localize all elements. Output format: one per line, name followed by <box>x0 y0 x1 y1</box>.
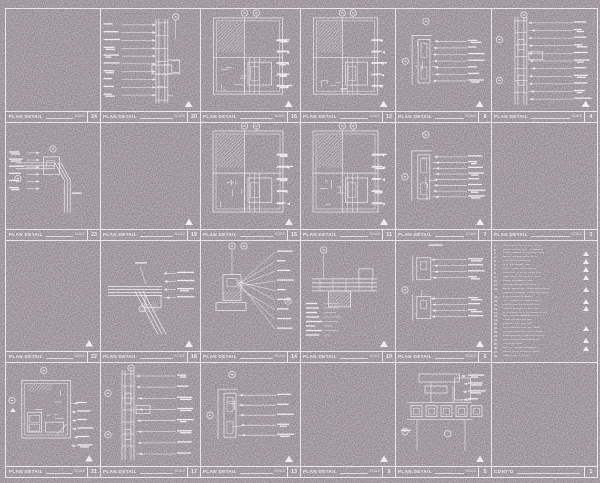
panel-title: PLAN DETAIL <box>203 115 237 120</box>
title-rule <box>435 118 464 119</box>
panel-scale-label: SCALE <box>275 470 285 473</box>
detail-drawing <box>200 362 300 466</box>
detail-drawing <box>100 362 200 466</box>
keynote-text: CONT. SEALANT AND BKR. ROD <box>503 252 583 255</box>
panel-scale-label: SCALE <box>370 115 380 118</box>
title-rule <box>46 358 73 359</box>
detail-drawing <box>300 9 395 111</box>
detail-panel-3: PLAN DETAILSCALE3 <box>491 122 598 241</box>
detail-panel-22: PLAN DETAILSCALE22 <box>5 240 101 363</box>
panel-title: PLAN DETAIL <box>494 233 528 238</box>
keynote-text: ACOUS. SEALANT BOTH SIDES <box>503 331 595 334</box>
title-rule <box>240 236 273 237</box>
detail-panel-15: PLAN DETAILSCALE15 <box>200 122 301 241</box>
panel-scale-label: SCALE <box>370 470 380 473</box>
detail-panel-5: PLAN DETAILSCALE5 <box>395 362 492 478</box>
detail-panel-16: PLAN DETAILSCALE16 <box>200 8 301 123</box>
title-rule <box>140 236 173 237</box>
keynote-code: 1. <box>494 245 503 248</box>
keynote-text: PREFIN. MTL. COPING <box>503 323 595 326</box>
panel-title: PLAN DETAIL <box>398 233 432 238</box>
keynote-text: 5/8 IN. GYP. BD. O/ MTL. STUD <box>503 245 595 248</box>
title-rule <box>517 473 580 474</box>
panel-number-badge: 12 <box>382 112 395 122</box>
detail-drawing <box>491 9 597 111</box>
title-rule <box>140 118 173 119</box>
panel-number-badge: 23 <box>87 230 100 240</box>
panel-title-bar: PLAN DETAILSCALE16 <box>200 111 300 122</box>
detail-drawing <box>200 9 300 111</box>
keynote-text: REPAIR AS REQD. TO MATCH EXIST. <box>503 292 595 295</box>
panel-title-bar: CONT'D1 <box>491 466 597 477</box>
detail-drawing <box>395 240 491 351</box>
panel-title: PLAN DETAIL <box>203 470 237 475</box>
title-rule <box>531 236 570 237</box>
keynote-text: STL. TUBE COL. SEE STRUCT. <box>503 300 583 303</box>
title-rule <box>240 118 273 119</box>
panel-scale-label: SCALE <box>75 115 85 118</box>
keynote-text: STL. ANGLE CONT. EA. SIDE <box>503 327 583 330</box>
detail-panel-19: PLAN DETAILSCALE19 <box>100 122 201 241</box>
panel-number-badge: 9 <box>382 467 395 477</box>
panel-scale-label: SCALE <box>466 233 476 236</box>
keynote-text: RIGID INSUL. R-10 MIN. <box>503 319 595 322</box>
detail-drawing <box>200 122 300 229</box>
panel-number-badge: 1 <box>584 467 597 477</box>
panel-title-bar: PLAN DETAILSCALE19 <box>100 229 200 240</box>
title-rule <box>140 473 173 474</box>
panel-scale-label: SCALE <box>275 115 285 118</box>
panel-number-badge: 17 <box>187 467 200 477</box>
panel-number-badge: 10 <box>382 352 395 362</box>
panel-number-badge: 18 <box>187 352 200 362</box>
detail-panel-1: CONT'D1 <box>491 362 598 478</box>
detail-drawing <box>300 122 395 229</box>
panel-title: PLAN DETAIL <box>494 115 528 120</box>
detail-drawing <box>395 122 491 229</box>
keynote-text: ALIGN FACE W/ EXIST. WALL <box>503 351 595 354</box>
title-rule <box>46 236 73 237</box>
panel-scale-label: SCALE <box>572 115 582 118</box>
detail-panel-9: PLAN DETAILSCALE9 <box>300 362 396 478</box>
keynote-text: ALUM. STOREFRONT SYS. <box>503 256 595 259</box>
detail-drawing <box>6 240 100 351</box>
panel-number-badge: 3 <box>584 230 597 240</box>
panel-title: PLAN DETAIL <box>303 233 337 238</box>
panel-title: PLAN DETAIL <box>9 355 43 360</box>
panel-title-bar: PLAN DETAILSCALE14 <box>200 351 300 362</box>
panel-title: PLAN DETAIL <box>103 233 137 238</box>
detail-drawing <box>395 362 491 466</box>
detail-drawing <box>200 240 300 351</box>
panel-title-bar: PLAN DETAILSCALE24 <box>6 111 100 122</box>
panel-title-bar: PLAN DETAILSCALE18 <box>100 351 200 362</box>
panel-title: PLAN DETAIL <box>398 355 432 360</box>
panel-title: PLAN DETAIL <box>203 233 237 238</box>
panel-scale-label: SCALE <box>275 355 285 358</box>
panel-number-badge: 5 <box>478 467 491 477</box>
keynote-row: 28.SEE STRUCT. DWGS. <box>494 354 595 358</box>
detail-panel-13: PLAN DETAILSCALE13 <box>200 362 301 478</box>
panel-scale-label: SCALE <box>75 355 85 358</box>
panel-title: PLAN DETAIL <box>303 355 337 360</box>
title-rule <box>140 358 173 359</box>
panel-number-badge: 8 <box>478 112 491 122</box>
keynote-text: CEM. PLASTER O/ MTL. LATH <box>503 276 583 279</box>
detail-panel-21: PLAN DETAILSCALE21 <box>5 362 101 478</box>
keynote-text: 1 IN. INSUL. GLAZING <box>503 260 583 263</box>
panel-scale-label: SCALE <box>275 233 285 236</box>
panel-scale-label: SCALE <box>466 115 476 118</box>
panel-title-bar: PLAN DETAILSCALE10 <box>300 351 395 362</box>
keynote-text: 2-HR RATED ASSEMBLY <box>503 296 595 299</box>
title-rule <box>340 236 368 237</box>
keynote-text: SEE STRUCT. DWGS. <box>503 355 595 358</box>
panel-title-bar: PLAN DETAILSCALE11 <box>300 229 395 240</box>
panel-number-badge: 20 <box>187 112 200 122</box>
title-rule <box>435 358 464 359</box>
keynote-code: 12. <box>494 288 503 291</box>
keynote-code: 28. <box>494 355 503 358</box>
detail-panel-10: PLAN DETAILSCALE10 <box>300 240 396 363</box>
detail-drawing <box>300 240 395 351</box>
panel-title-bar: PLAN DETAILSCALE4 <box>491 111 597 122</box>
keynote-text: ANCHOR BOLT AT 24 IN. O.C. <box>503 304 595 307</box>
panel-number-badge: 24 <box>87 112 100 122</box>
detail-drawing <box>491 362 597 466</box>
panel-title-bar: PLAN DETAILSCALE12 <box>300 111 395 122</box>
keynote-text: MTL. PANEL SYS. W/ CONC. CLIPS <box>503 312 595 315</box>
panel-title-bar: PLAN DETAILSCALE13 <box>200 466 300 477</box>
panel-title-bar: PLAN DETAILSCALE15 <box>200 229 300 240</box>
panel-number-badge: 11 <box>382 230 395 240</box>
title-rule <box>240 358 273 359</box>
keynote-text: MTL. CLOSURE TRIM <box>503 264 595 267</box>
panel-title: PLAN DETAIL <box>303 115 337 120</box>
panel-title-bar: PLAN DETAILSCALE23 <box>6 229 100 240</box>
panel-title-bar: PLAN DETAILSCALE21 <box>6 466 100 477</box>
detail-panel-24: PLAN DETAILSCALE24 <box>5 8 101 123</box>
detail-panel-2: 1.5/8 IN. GYP. BD. O/ MTL. STUD2.EXIST. … <box>491 240 598 363</box>
panel-title-bar: PLAN DETAILSCALE20 <box>100 111 200 122</box>
panel-scale-label: SCALE <box>175 115 185 118</box>
panel-title: PLAN DETAIL <box>9 115 43 120</box>
keynote-text: FIRE SAFING AT DECK FLUTES <box>503 335 595 338</box>
panel-title-bar: PLAN DETAILSCALE6 <box>395 351 491 362</box>
panel-scale-label: SCALE <box>75 470 85 473</box>
panel-scale-label: SCALE <box>466 355 476 358</box>
keynote-text: WEEP SCREED AT SILL <box>503 280 595 283</box>
keynote-text: EXP. JT. COVER ASSEMBLY <box>503 347 583 350</box>
keynote-text: SHIM AS REQD. AT EA. CLIP <box>503 308 583 311</box>
panel-title: PLAN DETAIL <box>203 355 237 360</box>
panel-scale-label: SCALE <box>572 233 582 236</box>
keynote-text: 6 IN. MTL. STUD AT 16 IN. O.C. <box>503 272 595 275</box>
detail-panel-6: PLAN DETAILSCALE6 <box>395 240 492 363</box>
panel-number-badge: 22 <box>87 352 100 362</box>
panel-title-bar: PLAN DETAILSCALE22 <box>6 351 100 362</box>
keynote-code: 15. <box>494 304 503 307</box>
panel-title-bar: PLAN DETAILSCALE3 <box>491 229 597 240</box>
panel-number-badge: 15 <box>287 230 300 240</box>
title-rule <box>435 236 464 237</box>
panel-scale-label: SCALE <box>370 233 380 236</box>
title-rule <box>531 118 570 119</box>
panel-scale-label: SCALE <box>75 233 85 236</box>
title-rule <box>340 473 368 474</box>
title-rule <box>46 118 73 119</box>
panel-title: PLAN DETAIL <box>9 233 43 238</box>
detail-drawing <box>100 9 200 111</box>
panel-title: PLAN DETAIL <box>103 355 137 360</box>
detail-panel-23: PLAN DETAILSCALE23 <box>5 122 101 241</box>
panel-number-badge: 6 <box>478 352 491 362</box>
detail-panel-4: PLAN DETAILSCALE4 <box>491 8 598 123</box>
detail-drawing <box>100 240 200 351</box>
keynote-text: EXIST. MASONRY WALL, PATCH AND <box>503 288 583 291</box>
panel-title: PLAN DETAIL <box>303 470 337 475</box>
title-rule <box>240 473 273 474</box>
title-rule <box>340 358 368 359</box>
panel-scale-label: SCALE <box>175 470 185 473</box>
detail-drawing <box>6 362 100 466</box>
panel-number-badge: 16 <box>287 112 300 122</box>
panel-title: CONT'D <box>494 470 514 475</box>
panel-title-bar: PLAN DETAILSCALE7 <box>395 229 491 240</box>
detail-drawing <box>6 122 100 229</box>
panel-number-badge: 7 <box>478 230 491 240</box>
panel-number-badge: 19 <box>187 230 200 240</box>
panel-scale-label: SCALE <box>175 355 185 358</box>
detail-drawing <box>491 122 597 229</box>
title-rule <box>435 473 464 474</box>
panel-title-bar: PLAN DETAILSCALE8 <box>395 111 491 122</box>
detail-panel-17: PLAN DETAILSCALE17 <box>100 362 201 478</box>
panel-scale-label: SCALE <box>175 233 185 236</box>
detail-sheet: PLAN DETAILSCALE24PLAN DETAILSCALE20PLAN… <box>0 0 600 483</box>
panel-title-bar: PLAN DETAILSCALE5 <box>395 466 491 477</box>
detail-panel-18: PLAN DETAILSCALE18 <box>100 240 201 363</box>
detail-panel-11: PLAN DETAILSCALE11 <box>300 122 396 241</box>
keynote-text: FLASHING AND CONTROL JT. <box>503 284 595 287</box>
detail-drawing <box>300 362 395 466</box>
keynote-text: BATT INSUL. FULL DEPTH <box>503 268 583 271</box>
detail-drawing <box>6 9 100 111</box>
panel-number-badge: 21 <box>87 467 100 477</box>
detail-panel-8: PLAN DETAILSCALE8 <box>395 8 492 123</box>
keynote-code: 16. <box>494 308 503 311</box>
panel-title: PLAN DETAIL <box>9 470 43 475</box>
panel-number-badge: 13 <box>287 467 300 477</box>
keynote-text: EXIST. CONC. COL. TO REMAIN <box>503 249 595 252</box>
keynote-text: AIR / VAPOR BARRIER CONT. <box>503 315 595 318</box>
panel-scale-label: SCALE <box>466 470 476 473</box>
panel-title: PLAN DETAIL <box>398 470 432 475</box>
title-rule <box>46 473 73 474</box>
keynotes-list: 1.5/8 IN. GYP. BD. O/ MTL. STUD2.EXIST. … <box>494 244 595 360</box>
panel-title: PLAN DETAIL <box>398 115 432 120</box>
panel-number-badge: 4 <box>584 112 597 122</box>
panel-title: PLAN DETAIL <box>103 115 137 120</box>
panel-number-badge: 14 <box>287 352 300 362</box>
title-rule <box>340 118 368 119</box>
detail-panel-20: PLAN DETAILSCALE20 <box>100 8 201 123</box>
detail-drawing <box>395 9 491 111</box>
panel-title-bar: PLAN DETAILSCALE17 <box>100 466 200 477</box>
detail-drawing <box>100 122 200 229</box>
panel-scale-label: SCALE <box>370 355 380 358</box>
keynote-text: FIN. FLR. LINE <box>503 343 595 346</box>
keynote-text: HM. DOOR FRAME BEYOND <box>503 339 583 342</box>
detail-panel-14: PLAN DETAILSCALE14 <box>200 240 301 363</box>
panel-title-bar: PLAN DETAILSCALE9 <box>300 466 395 477</box>
detail-panel-12: PLAN DETAILSCALE12 <box>300 8 396 123</box>
panel-title: PLAN DETAIL <box>103 470 137 475</box>
detail-panel-7: PLAN DETAILSCALE7 <box>395 122 492 241</box>
